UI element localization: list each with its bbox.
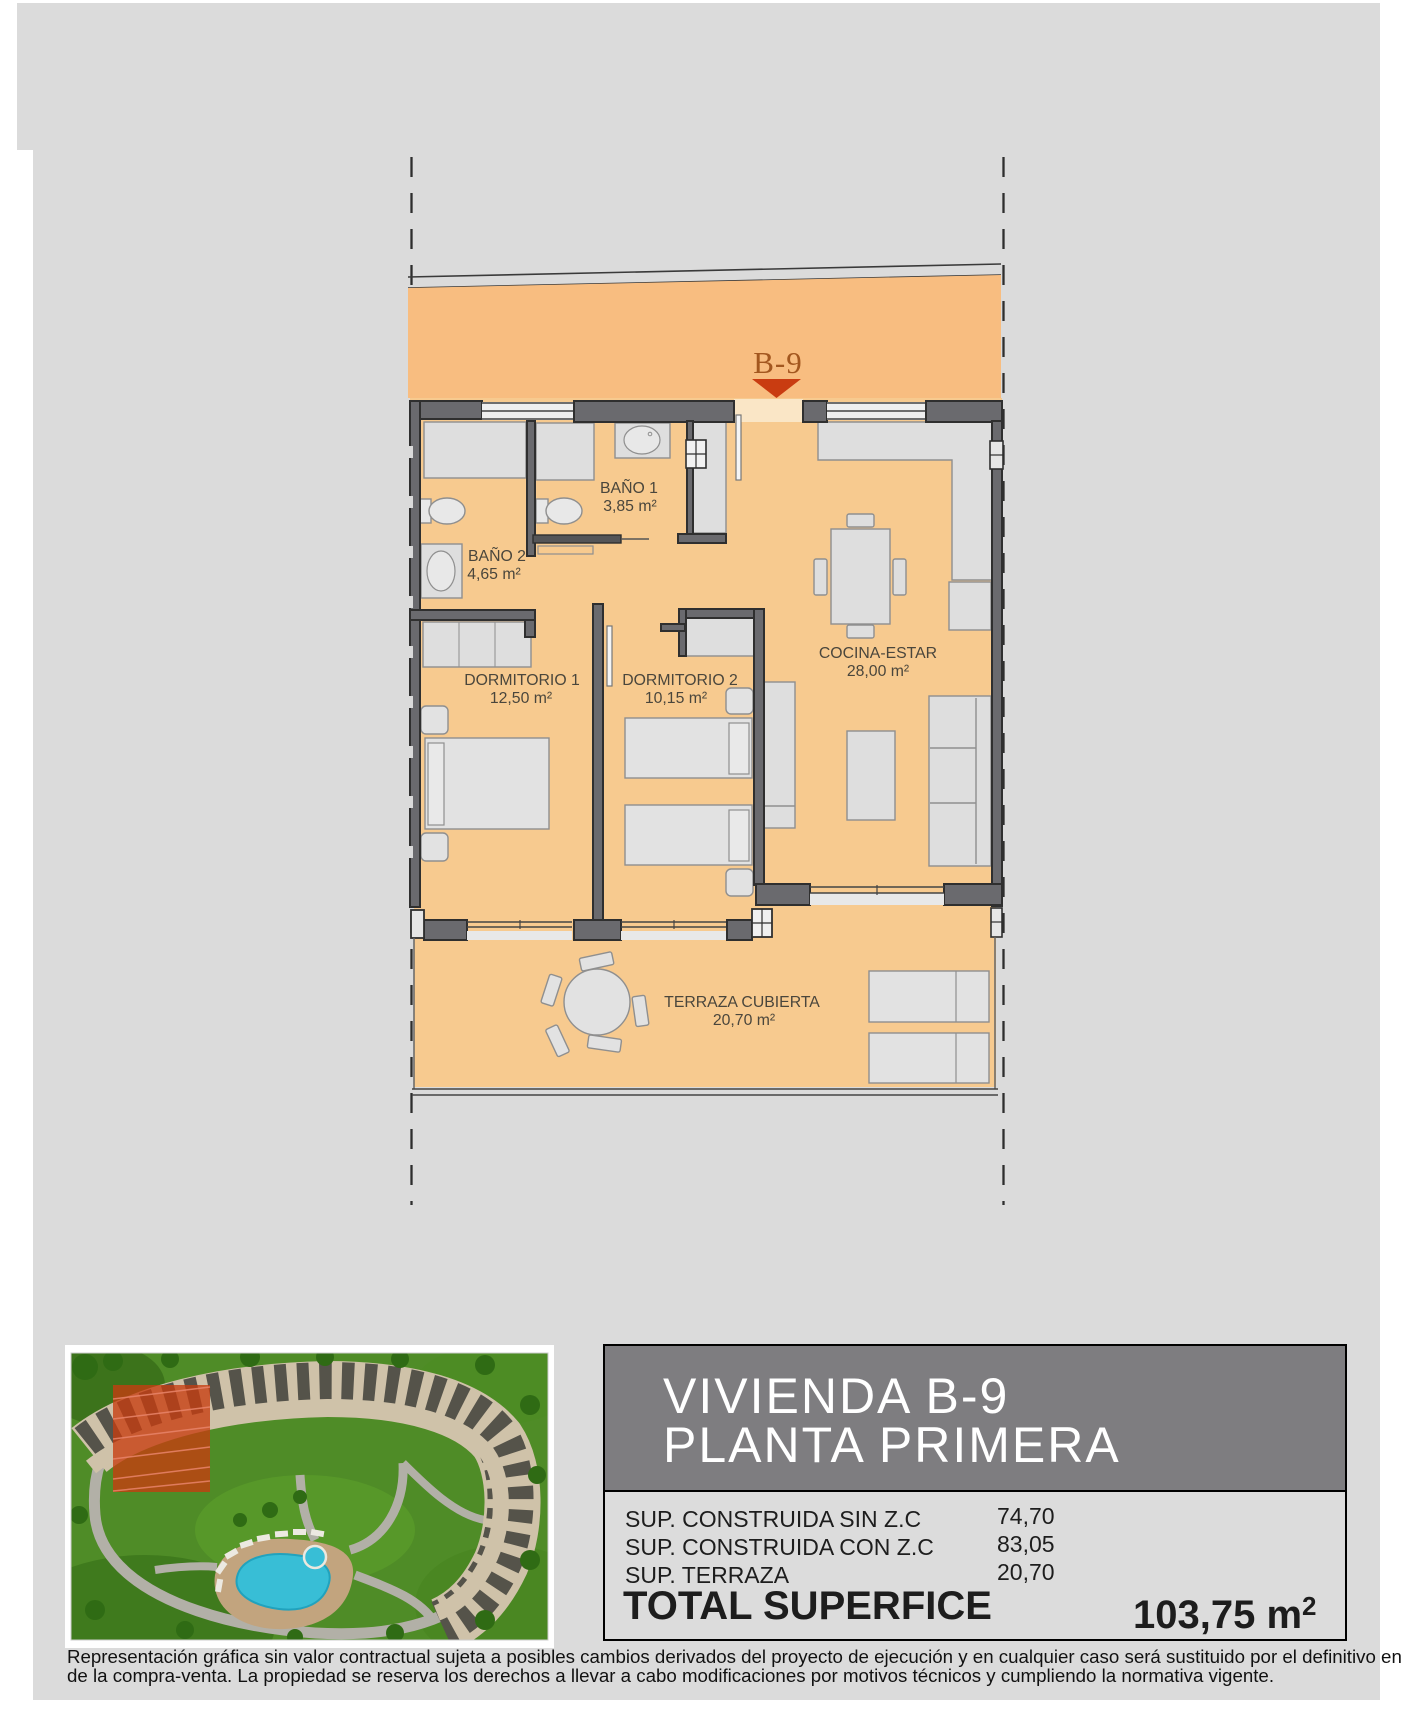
svg-text:DORMITORIO 2: DORMITORIO 2: [622, 672, 738, 689]
svg-text:12,50 m²: 12,50 m²: [490, 690, 552, 707]
svg-text:BAÑO 2: BAÑO 2: [468, 545, 526, 565]
svg-text:28,00 m²: 28,00 m²: [847, 663, 909, 680]
svg-text:20,70 m²: 20,70 m²: [713, 1012, 775, 1029]
svg-text:BAÑO 1: BAÑO 1: [600, 477, 658, 497]
svg-text:4,65 m²: 4,65 m²: [467, 566, 521, 583]
svg-text:TERRAZA CUBIERTA: TERRAZA CUBIERTA: [664, 994, 820, 1011]
svg-text:10,15 m²: 10,15 m²: [645, 690, 707, 707]
svg-text:DORMITORIO 1: DORMITORIO 1: [464, 672, 580, 689]
svg-text:B-9: B-9: [753, 345, 803, 380]
svg-text:3,85 m²: 3,85 m²: [603, 498, 657, 515]
svg-text:COCINA-ESTAR: COCINA-ESTAR: [819, 645, 937, 662]
